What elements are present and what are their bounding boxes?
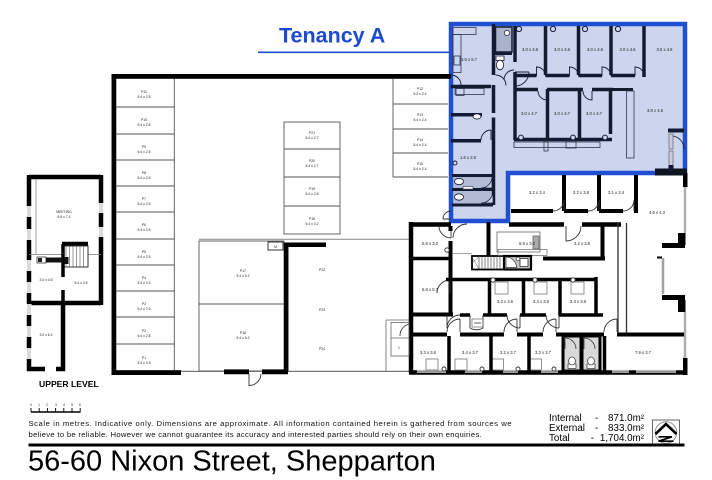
svg-text:P5: P5: [142, 250, 146, 254]
svg-text:P23: P23: [319, 308, 325, 312]
svg-text:P18: P18: [309, 217, 315, 221]
svg-text:3: 3: [55, 403, 57, 407]
svg-text:3.3 x 3.8: 3.3 x 3.8: [570, 299, 587, 304]
svg-text:5.4 x 2.5: 5.4 x 2.5: [137, 228, 150, 232]
svg-text:5.4 x 2.7: 5.4 x 2.7: [305, 164, 318, 168]
svg-text:6: 6: [79, 403, 81, 407]
svg-text:P12: P12: [417, 87, 423, 91]
svg-text:P3: P3: [142, 302, 146, 306]
svg-text:5.8 x 5.7: 5.8 x 5.7: [422, 287, 439, 292]
svg-text:5.4 x 2.5: 5.4 x 2.5: [137, 150, 150, 154]
svg-text:3.0 x 4.6: 3.0 x 4.6: [587, 47, 604, 52]
svg-text:3.0 x 4.6: 3.0 x 4.6: [619, 47, 636, 52]
svg-text:5.4 x 2.5: 5.4 x 2.5: [137, 255, 150, 259]
svg-text:3.1 x 3.4: 3.1 x 3.4: [608, 190, 625, 195]
svg-text:3.8 x 4.6: 3.8 x 4.6: [647, 108, 664, 113]
svg-text:P21: P21: [309, 131, 315, 135]
svg-text:5.4 x 2.4: 5.4 x 2.4: [413, 143, 426, 147]
svg-text:3.0 x 4.6: 3.0 x 4.6: [554, 47, 571, 52]
svg-text:P6: P6: [142, 223, 146, 227]
svg-text:3.2 x 3.4: 3.2 x 3.4: [529, 190, 546, 195]
svg-text:P15: P15: [417, 162, 423, 166]
svg-text:3.3 x 3.8: 3.3 x 3.8: [533, 299, 550, 304]
svg-text:5.4 x 2.5: 5.4 x 2.5: [137, 281, 150, 285]
svg-text:3.0 x 6.2: 3.0 x 6.2: [39, 333, 52, 337]
svg-text:5.4 x 6.2: 5.4 x 6.2: [236, 274, 249, 278]
svg-text:5.4 x 2.7: 5.4 x 2.7: [305, 136, 318, 140]
svg-text:P19: P19: [309, 187, 315, 191]
svg-text:3.5 x 4.6: 3.5 x 4.6: [656, 47, 673, 52]
svg-text:P13: P13: [417, 113, 423, 117]
svg-text:5.4 x 2.4: 5.4 x 2.4: [413, 118, 426, 122]
svg-text:3.4 x 3.7: 3.4 x 3.7: [462, 350, 479, 355]
svg-text:3.3 x 3.6: 3.3 x 3.6: [420, 350, 437, 355]
svg-text:P10: P10: [141, 118, 147, 122]
svg-text:3.0 x 4.7: 3.0 x 4.7: [554, 111, 571, 116]
svg-text:5: 5: [71, 403, 73, 407]
svg-text:P14: P14: [417, 138, 423, 142]
svg-text:-: -: [595, 423, 598, 434]
svg-text:3.0 x 4.7: 3.0 x 4.7: [521, 111, 538, 116]
svg-text:believe to be reliable. Howeve: believe to be reliable. However we canno…: [29, 430, 483, 439]
svg-text:0: 0: [30, 403, 32, 407]
svg-text:P8: P8: [142, 171, 146, 175]
svg-text:3.3 x 3.7: 3.3 x 3.7: [535, 350, 552, 355]
svg-text:5.4 x 2.8: 5.4 x 2.8: [137, 95, 150, 99]
svg-text:P2: P2: [142, 329, 146, 333]
svg-text:5.8 x 3.0: 5.8 x 3.0: [422, 241, 439, 246]
svg-text:5.4 x 2.8: 5.4 x 2.8: [137, 361, 150, 365]
svg-text:5.4 x 2.4: 5.4 x 2.4: [413, 167, 426, 171]
svg-text:5.4 x 3.2: 5.4 x 3.2: [305, 222, 318, 226]
svg-text:P11: P11: [141, 90, 147, 94]
svg-text:5.4 x 2.8: 5.4 x 2.8: [137, 334, 150, 338]
svg-text:3.0 x 4.6: 3.0 x 4.6: [522, 47, 539, 52]
svg-text:5.4 x 2.5: 5.4 x 2.5: [137, 202, 150, 206]
svg-text:P4: P4: [142, 276, 146, 280]
svg-text:3.2 x 3.8: 3.2 x 3.8: [574, 241, 591, 246]
svg-text:Total: Total: [549, 433, 570, 444]
svg-text:P24: P24: [319, 347, 325, 351]
svg-text:MEETING: MEETING: [56, 210, 72, 214]
svg-text:3.6 x 5.7: 3.6 x 5.7: [461, 57, 478, 62]
svg-text:3.3 x 3.6: 3.3 x 3.6: [497, 299, 514, 304]
svg-text:7.9 x 3.7: 7.9 x 3.7: [635, 350, 652, 355]
svg-text:M: M: [274, 245, 277, 249]
svg-text:56-60 Nixon Street, Shepparton: 56-60 Nixon Street, Shepparton: [28, 446, 436, 478]
svg-text:3.0 x 4.5: 3.0 x 4.5: [39, 278, 52, 282]
svg-text:5.4 x 2.8: 5.4 x 2.8: [137, 123, 150, 127]
svg-text:P22: P22: [319, 268, 325, 272]
svg-text:P18: P18: [240, 331, 246, 335]
svg-text:5.4 x 4.5: 5.4 x 4.5: [74, 281, 87, 285]
svg-text:5.4 x 2.8: 5.4 x 2.8: [305, 192, 318, 196]
svg-text:P20: P20: [309, 159, 315, 163]
svg-text:1: 1: [38, 403, 40, 407]
svg-text:-: -: [591, 433, 594, 444]
svg-text:P7: P7: [142, 197, 146, 201]
svg-text:1: 1: [398, 346, 400, 350]
svg-text:Scale in metres. Indicative on: Scale in metres. Indicative only. Dimens…: [29, 419, 513, 428]
svg-text:1,704.0m²: 1,704.0m²: [600, 433, 645, 444]
svg-text:P17: P17: [240, 269, 246, 273]
svg-text:5.4 x 6.2: 5.4 x 6.2: [236, 336, 249, 340]
svg-text:2: 2: [46, 403, 48, 407]
svg-text:Tenancy A: Tenancy A: [279, 24, 385, 48]
svg-text:P9: P9: [142, 145, 146, 149]
svg-text:5.4 x 2.5: 5.4 x 2.5: [137, 176, 150, 180]
svg-text:5.4 x 2.4: 5.4 x 2.4: [413, 92, 426, 96]
svg-text:6.5 x 7.4: 6.5 x 7.4: [57, 215, 70, 219]
svg-text:1.6 x 2.8: 1.6 x 2.8: [460, 155, 477, 160]
svg-text:3.2 x 3.8: 3.2 x 3.8: [573, 190, 590, 195]
svg-text:3.0 x 4.7: 3.0 x 4.7: [586, 111, 603, 116]
svg-text:4.6 x 4.3: 4.6 x 4.3: [649, 210, 666, 215]
svg-text:4: 4: [63, 403, 65, 407]
svg-text:5.4 x 2.5: 5.4 x 2.5: [137, 307, 150, 311]
svg-text:UPPER LEVEL: UPPER LEVEL: [39, 379, 99, 389]
svg-text:3.2 x 3.7: 3.2 x 3.7: [500, 350, 517, 355]
svg-text:P1: P1: [142, 356, 146, 360]
svg-text:6.9 x 3.0: 6.9 x 3.0: [519, 241, 536, 246]
